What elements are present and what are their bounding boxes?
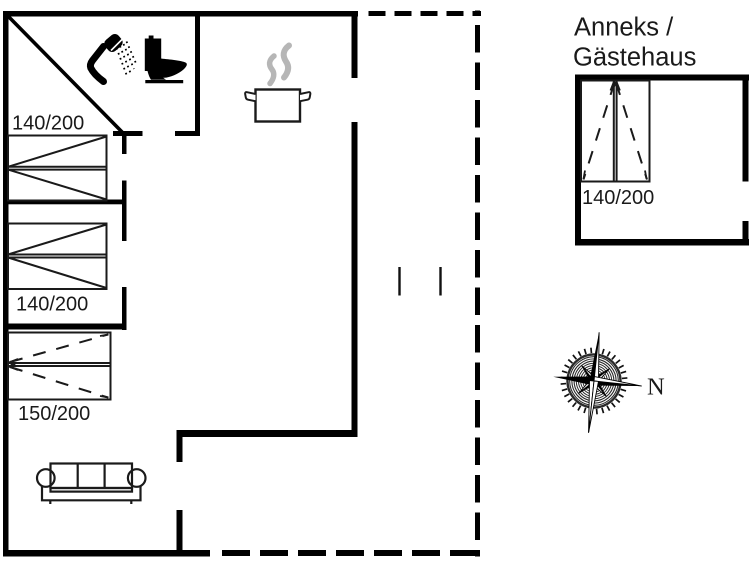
svg-text:150/200: 150/200 <box>18 403 90 425</box>
svg-text:140/200: 140/200 <box>12 113 84 135</box>
svg-text:Gästehaus: Gästehaus <box>573 44 696 72</box>
svg-text:Anneks /: Anneks / <box>574 14 674 42</box>
svg-text:140/200: 140/200 <box>16 294 88 316</box>
svg-text:140/200: 140/200 <box>582 187 654 209</box>
svg-text:N: N <box>647 374 665 401</box>
